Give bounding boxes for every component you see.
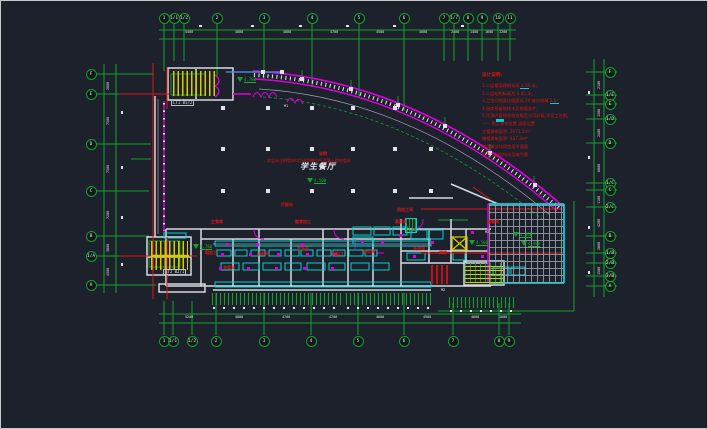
walls bbox=[147, 68, 504, 292]
dimension-number-row bbox=[450, 310, 516, 312]
center-note-title: 说明 bbox=[319, 152, 327, 156]
food-lift bbox=[452, 237, 467, 250]
note-underline bbox=[520, 88, 529, 89]
service-strip-hatch bbox=[405, 218, 417, 233]
stair-hatch-top bbox=[173, 71, 215, 96]
note-legend-swatch bbox=[496, 119, 504, 122]
cad-drawing-canvas[interactable]: 说明 本层未注明墙体均为200厚加气混凝土砌块墙体 学生餐厅 11/11/223… bbox=[0, 0, 708, 429]
dimension-tick-band bbox=[449, 297, 517, 308]
drawing-linework bbox=[1, 1, 707, 428]
dimension-number-row bbox=[213, 307, 341, 309]
dimension-tick-band bbox=[346, 293, 431, 305]
stair-hatch-bottom bbox=[151, 241, 188, 270]
note-underline bbox=[550, 103, 559, 104]
wc-stall-hatch bbox=[431, 265, 449, 284]
window-hatch-arc bbox=[254, 75, 560, 209]
dimension-tick-band bbox=[212, 293, 342, 305]
room-title: 学生餐厅 bbox=[300, 163, 336, 171]
escalator-hatch bbox=[465, 263, 503, 283]
dimension-number-row bbox=[347, 307, 431, 309]
